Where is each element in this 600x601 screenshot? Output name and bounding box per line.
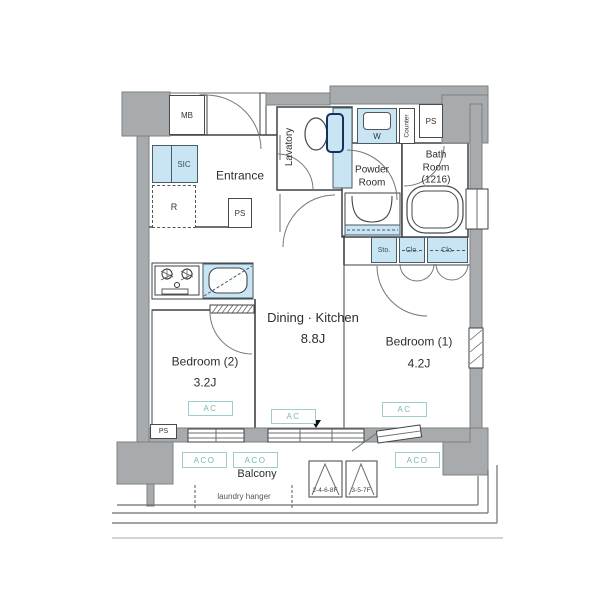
storage-label: Sto. — [378, 247, 390, 254]
washing-machine-drum — [363, 112, 391, 130]
bath-room-size: (1216) — [405, 174, 467, 187]
dining-kitchen-size: 8.8J — [301, 331, 326, 347]
sliding-door-track — [210, 305, 254, 313]
ac-label: AC — [203, 404, 217, 413]
counter: Counter — [399, 108, 415, 144]
balcony-label: Balcony — [237, 468, 276, 482]
closet-2: Clo. — [427, 237, 468, 263]
refrigerator-label: R — [171, 202, 178, 212]
window-bedroom2 — [188, 429, 244, 442]
meter-box: MB — [169, 95, 205, 135]
aco-label: ACO — [407, 456, 429, 465]
storage: Sto. — [371, 237, 397, 263]
shoes-in-closet: SIC — [152, 145, 198, 183]
window-bathroom — [466, 189, 488, 229]
floor-plan: MB SIC R PS W Counter PS Sto. Clo. Clo. … — [0, 0, 600, 601]
bedroom1-label: Bedroom (1) — [386, 335, 453, 350]
ac-bedroom2: AC — [188, 401, 233, 416]
closet-rod — [430, 250, 465, 251]
pipe-space-top-right: PS — [419, 104, 443, 138]
aco-right: ACO — [395, 452, 440, 468]
powder-room-label: Powder Room — [346, 165, 398, 190]
pipe-space-bottom-left: PS — [150, 424, 177, 439]
ac-label: AC — [286, 412, 300, 421]
window-bedroom1-side — [469, 328, 483, 368]
aco-left: ACO — [182, 452, 227, 468]
washing-machine-label: W — [358, 132, 396, 141]
bedroom2-label: Bedroom (2) — [172, 355, 239, 370]
refrigerator-space: R — [152, 185, 196, 228]
partition-odd-floors-label: 3-5-7F — [351, 487, 370, 495]
bedroom1-size: 4.2J — [408, 357, 431, 372]
ps-label: PS — [426, 117, 437, 126]
bathtub-icon — [407, 186, 463, 233]
counter-label: Counter — [404, 114, 411, 137]
sic-label: SIC — [171, 160, 197, 169]
aco-center: ACO — [233, 452, 278, 468]
washbasin-icon — [345, 193, 400, 235]
entrance-label: Entrance — [216, 169, 264, 184]
dining-kitchen-label: Dining · Kitchen — [267, 310, 359, 326]
laundry-hanger-label: laundry hanger — [217, 492, 270, 502]
meter-box-label: MB — [181, 111, 193, 120]
ps-label: PS — [235, 209, 246, 218]
ps-label: PS — [159, 428, 168, 435]
bedroom2-size: 3.2J — [194, 376, 217, 391]
partition-even-floors-label: 2-4-6-8F — [313, 487, 338, 495]
aco-label: ACO — [245, 456, 267, 465]
washing-machine: W — [357, 108, 397, 144]
ac-label: AC — [397, 405, 411, 414]
floor-plan-drawing — [0, 0, 600, 601]
closet-rod — [402, 250, 422, 251]
aco-label: ACO — [194, 456, 216, 465]
stove-icon — [155, 266, 199, 295]
closet-1: Clo. — [399, 237, 425, 263]
ac-bedroom1: AC — [382, 402, 427, 417]
kitchen-sink-icon — [203, 264, 253, 298]
lavatory-label: Lavatory — [284, 128, 297, 166]
ac-dining-kitchen: AC — [271, 409, 316, 424]
bath-room-label: Bath Room (1216) — [405, 149, 467, 187]
pipe-space-entrance: PS — [228, 198, 252, 228]
